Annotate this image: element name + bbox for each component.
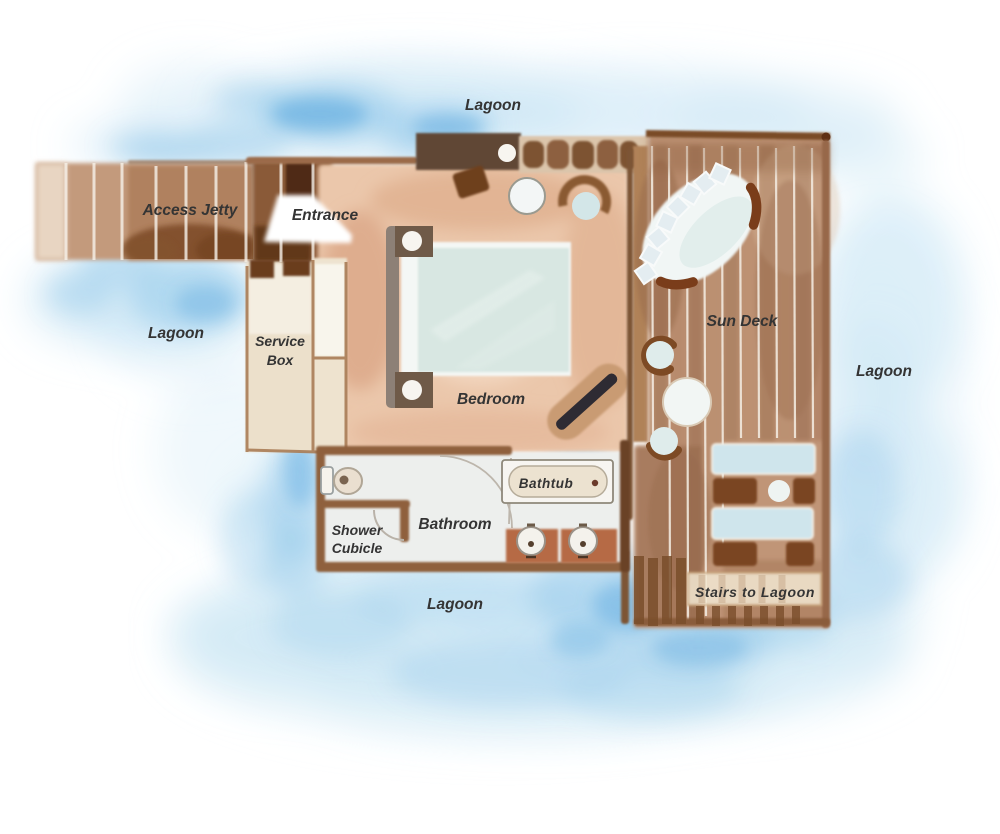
svg-text:Service: Service: [255, 333, 305, 349]
svg-text:Lagoon: Lagoon: [465, 97, 521, 114]
svg-text:Sun Deck: Sun Deck: [707, 313, 779, 330]
svg-text:Shower: Shower: [332, 522, 384, 538]
svg-text:Lagoon: Lagoon: [148, 325, 204, 342]
svg-text:Lagoon: Lagoon: [427, 596, 483, 613]
svg-text:Lagoon: Lagoon: [856, 363, 912, 380]
svg-text:Entrance: Entrance: [292, 207, 359, 224]
svg-text:Stairs to Lagoon: Stairs to Lagoon: [695, 584, 815, 600]
svg-text:Bedroom: Bedroom: [457, 391, 525, 408]
svg-text:Cubicle: Cubicle: [332, 540, 383, 556]
svg-text:Bathtub: Bathtub: [519, 476, 574, 491]
svg-text:Box: Box: [267, 352, 295, 368]
svg-text:Access Jetty: Access Jetty: [142, 202, 239, 219]
svg-text:Bathroom: Bathroom: [418, 516, 491, 533]
